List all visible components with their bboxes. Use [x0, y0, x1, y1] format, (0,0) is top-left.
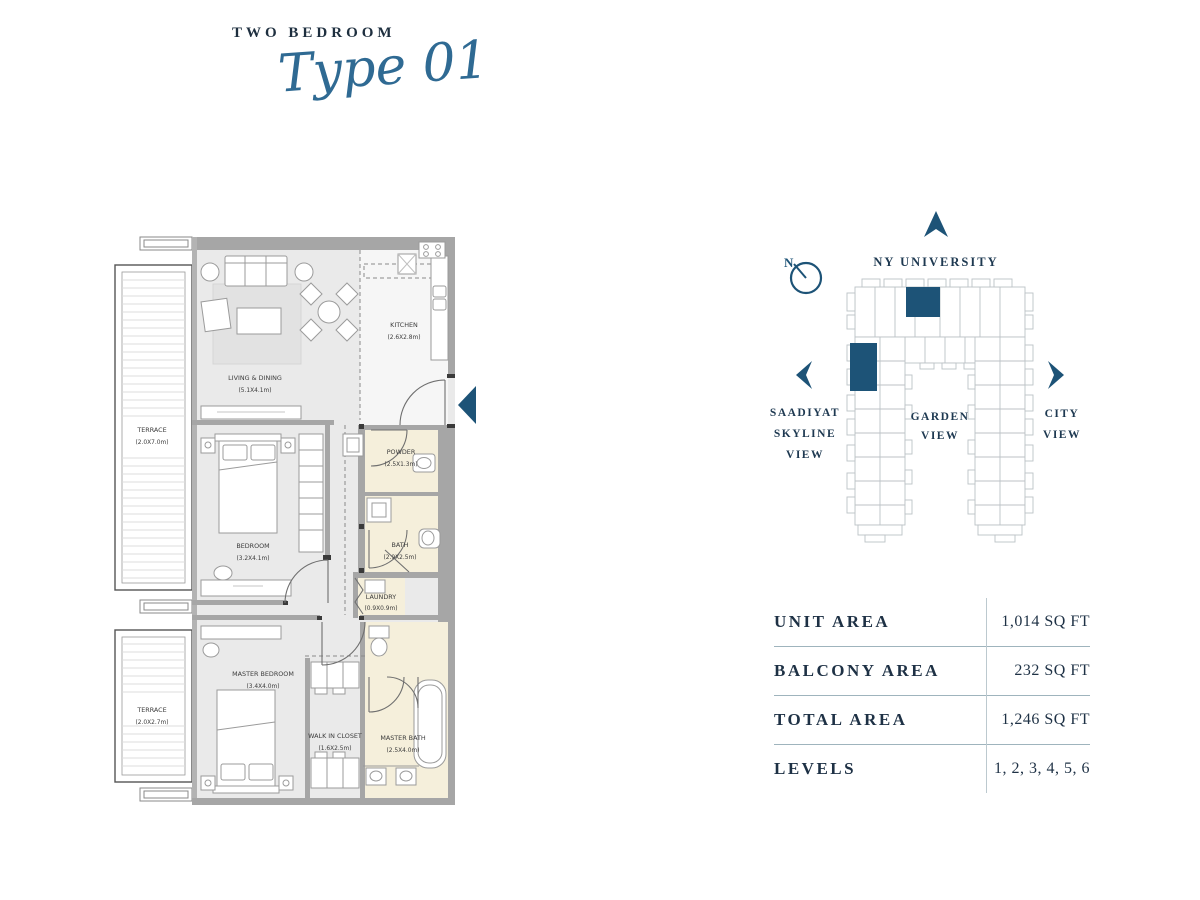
row-label: TOTAL AREA — [774, 710, 908, 730]
row-value: 1,014 SQ FT — [1001, 613, 1090, 631]
row-value: 1, 2, 3, 4, 5, 6 — [994, 760, 1090, 778]
room-label-master-bath: MASTER BATH — [380, 734, 426, 742]
svg-text:SAADIYAT: SAADIYAT — [770, 407, 840, 419]
room-dims-bath: (2.9X2.5m) — [383, 555, 416, 561]
row-value: 232 SQ FT — [1014, 662, 1090, 680]
room-label-terrace-bottom: TERRACE — [136, 706, 166, 714]
siteplan-right-label: CITY VIEW — [1043, 408, 1081, 441]
room-dims-powder: (2.5X1.3m) — [384, 462, 417, 468]
room-dims-master-bath: (2.5X4.0m) — [386, 748, 419, 754]
room-label-terrace-top: TERRACE — [136, 426, 166, 434]
room-dims-laundry: (0.9X0.9m) — [364, 606, 397, 612]
siteplan-diagram: N NY UNIVERSITY SAADIYAT SKYLINE VIEW GA… — [770, 205, 1100, 545]
table-row-balcony-area: BALCONY AREA 232 SQ FT — [774, 647, 1090, 696]
room-dims-living: (5.1X4.1m) — [238, 388, 271, 394]
compass-icon: N — [784, 255, 821, 293]
row-label: LEVELS — [774, 759, 856, 779]
svg-text:VIEW: VIEW — [786, 449, 824, 461]
row-value: 1,246 SQ FT — [1001, 711, 1090, 729]
compass-north-label: N — [784, 255, 794, 270]
siteplan-center-label: GARDEN VIEW — [911, 411, 970, 442]
title-block: TWO BEDROOM Type 01 — [232, 25, 396, 42]
room-dims-master-bedroom: (3.4X4.0m) — [246, 684, 279, 690]
table-row-levels: LEVELS 1, 2, 3, 4, 5, 6 — [774, 745, 1090, 793]
siteplan-top-label: NY UNIVERSITY — [873, 255, 998, 269]
entry-arrow-icon — [458, 386, 476, 424]
floorplan-drawing: LIVING & DINING (5.1X4.1m) KITCHEN (2.6X… — [113, 228, 478, 810]
unit-type-title: Type 01 — [276, 33, 499, 100]
siteplan-left-label: SAADIYAT SKYLINE VIEW — [770, 407, 840, 461]
table-row-unit-area: UNIT AREA 1,014 SQ FT — [774, 598, 1090, 647]
table-row-total-area: TOTAL AREA 1,246 SQ FT — [774, 696, 1090, 745]
room-dims-bedroom: (3.2X4.1m) — [236, 556, 269, 562]
room-label-living: LIVING & DINING — [228, 374, 282, 382]
svg-text:GARDEN: GARDEN — [911, 411, 970, 423]
west-arrow-icon — [796, 361, 812, 389]
room-dims-terrace-top: (2.0X7.0m) — [135, 440, 168, 446]
svg-text:VIEW: VIEW — [921, 430, 959, 442]
east-arrow-icon — [1048, 361, 1064, 389]
room-label-closet: WALK IN CLOSET — [308, 732, 362, 740]
room-dims-terrace-bottom: (2.0X2.7m) — [135, 720, 168, 726]
room-label-master-bedroom: MASTER BEDROOM — [232, 670, 294, 678]
row-label: BALCONY AREA — [774, 661, 940, 681]
room-dims-kitchen: (2.6X2.8m) — [387, 335, 420, 341]
row-label: UNIT AREA — [774, 612, 890, 632]
table-divider — [986, 598, 987, 793]
room-label-bedroom: BEDROOM — [236, 542, 269, 550]
room-dims-closet: (1.6X2.5m) — [318, 746, 351, 752]
room-label-kitchen: KITCHEN — [390, 321, 418, 329]
laundry-fixtures — [365, 580, 385, 593]
svg-text:CITY: CITY — [1045, 408, 1080, 420]
svg-text:SKYLINE: SKYLINE — [774, 428, 836, 440]
room-label-bath: BATH — [392, 541, 409, 549]
north-arrow-icon — [924, 211, 948, 237]
room-label-powder: POWDER — [387, 448, 416, 456]
svg-text:VIEW: VIEW — [1043, 429, 1081, 441]
unit-spec-table: UNIT AREA 1,014 SQ FT BALCONY AREA 232 S… — [774, 598, 1090, 793]
room-label-laundry: LAUNDRY — [366, 593, 396, 601]
